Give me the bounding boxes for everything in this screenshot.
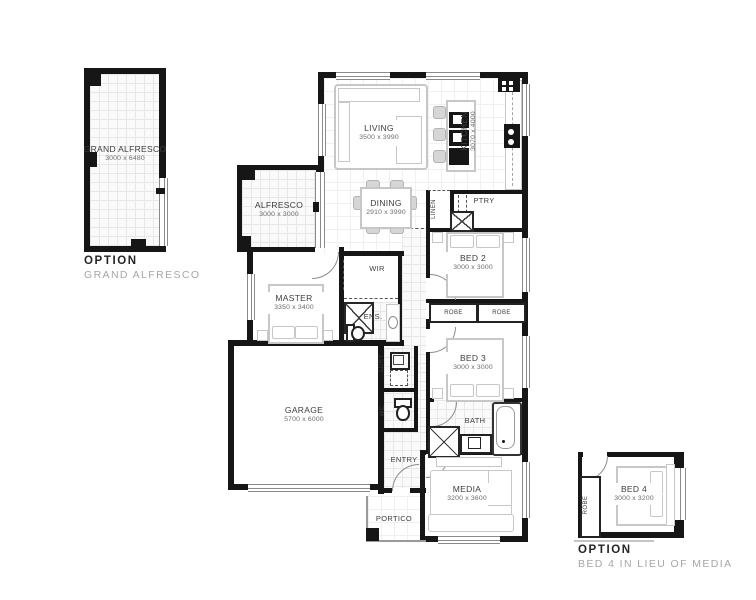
option-title: OPTION — [84, 255, 138, 267]
stool — [433, 106, 446, 119]
oven-dial — [508, 129, 514, 135]
room-dims: 2910 x 3990 — [366, 209, 406, 217]
room-dims: 5700 x 6000 — [284, 416, 324, 424]
robe-label: ROBE — [583, 485, 593, 525]
room-name: BED 4 — [621, 484, 647, 495]
wall — [426, 190, 430, 232]
window — [674, 468, 686, 520]
room-label-garage: GARAGE 5700 x 6000 — [264, 404, 344, 426]
bedside-table — [503, 388, 514, 399]
window — [318, 104, 326, 156]
broom-cupboard — [450, 211, 474, 232]
window — [336, 72, 390, 80]
burner — [502, 87, 506, 91]
wall — [384, 428, 418, 432]
burner — [502, 81, 506, 85]
window — [247, 274, 255, 320]
bedside-table — [432, 388, 443, 399]
room-name: BED 3 — [460, 353, 486, 364]
room-label-media: MEDIA 3200 x 3600 — [438, 483, 496, 505]
room-dims: 3500 x 3990 — [359, 134, 399, 142]
stool — [433, 150, 446, 163]
room-dims: 3000 x 6480 — [105, 155, 145, 163]
sofa-back — [338, 88, 420, 102]
window — [522, 336, 530, 388]
wall — [450, 190, 528, 194]
room-name: GARAGE — [285, 405, 323, 416]
window — [522, 462, 530, 518]
washing-machine — [390, 370, 408, 386]
robe: ROBE — [429, 303, 478, 323]
bedside-table — [257, 330, 268, 341]
wall — [607, 452, 678, 457]
bathtub-inner — [496, 406, 515, 449]
toilet — [351, 326, 365, 341]
room-label-wc: WC — [380, 396, 390, 426]
room-dims: 3200 x 3600 — [447, 495, 487, 503]
room-label-dining: DINING 2910 x 3990 — [366, 198, 406, 217]
wall — [344, 251, 404, 256]
wall — [426, 352, 430, 402]
room-name: KITCHEN — [459, 111, 470, 150]
room-label-bed3: BED 3 3000 x 3000 — [446, 352, 500, 374]
room-label-portico: PORTICO — [370, 514, 418, 523]
room-label-bed2: BED 2 3000 x 3000 — [446, 252, 500, 274]
bedside-table — [432, 232, 443, 243]
room-label-living: LIVING 3500 x 3990 — [350, 120, 408, 146]
wall — [228, 346, 234, 490]
pier-post — [242, 168, 255, 180]
tv-unit — [436, 457, 502, 467]
pillow — [476, 384, 500, 397]
dining-table: DINING 2910 x 3990 — [360, 187, 412, 229]
robe-label: ROBE — [444, 310, 463, 316]
pier-post — [239, 236, 251, 248]
room-dims: 3070 x 4000 — [470, 111, 478, 151]
room-label-entry: ENTRY — [384, 455, 424, 464]
door-jamb — [156, 188, 165, 194]
pillow — [450, 235, 474, 248]
wir-opening — [343, 260, 344, 290]
option-title: OPTION — [578, 544, 632, 556]
option-subtitle: BED 4 IN LIEU OF MEDIA — [578, 558, 733, 570]
room-name: ALFRESCO — [255, 200, 303, 211]
burner — [509, 87, 513, 91]
pillow — [476, 235, 500, 248]
window — [426, 72, 480, 80]
robe: ROBE — [477, 303, 526, 323]
room-label-bed4: BED 4 3000 x 3200 — [606, 483, 662, 505]
door-jamb — [131, 239, 146, 246]
pillow — [450, 384, 474, 397]
room-dims: 3000 x 3000 — [259, 211, 299, 219]
burner — [509, 81, 513, 85]
room-label-ldry: LDRY — [379, 343, 389, 383]
sofa-back — [428, 514, 514, 532]
basin — [468, 437, 481, 449]
toilet — [396, 405, 410, 421]
drain — [502, 440, 505, 443]
wall — [384, 388, 418, 392]
room-label-ptry: PTRY — [462, 196, 506, 205]
room-label-wir: WIR — [360, 264, 394, 273]
room-label-grand-alfresco: GRAND ALFRESCO 3000 x 6480 — [88, 142, 162, 166]
room-name: GRAND ALFRESCO — [84, 144, 167, 155]
room-name: MEDIA — [453, 484, 481, 495]
wall — [378, 488, 392, 493]
bedside-table — [503, 232, 514, 243]
robe-slider — [344, 298, 398, 299]
pier-post — [88, 74, 101, 86]
room-dims: 3000 x 3000 — [453, 264, 493, 272]
room-label-master: MASTER 3350 x 3400 — [263, 292, 325, 314]
stool — [433, 128, 446, 141]
room-label-linen: LINEN — [431, 191, 441, 227]
wall — [426, 228, 430, 278]
floorplan-canvas: GRAND ALFRESCO 3000 x 6480 OPTION GRAND … — [0, 0, 756, 600]
shadow-line — [574, 540, 654, 542]
room-label-bath: BATH — [458, 416, 492, 425]
shower — [428, 426, 460, 458]
trough-bowl — [393, 355, 404, 365]
room-name: DINING — [366, 198, 406, 209]
room-dims: 3000 x 3200 — [614, 495, 654, 503]
bed-head — [666, 464, 675, 526]
room-label-alfresco: ALFRESCO 3000 x 3000 — [242, 198, 316, 222]
pillow — [295, 326, 318, 339]
garage-door — [248, 484, 370, 492]
option-subtitle: GRAND ALFRESCO — [84, 269, 200, 281]
room-dims: 3000 x 3000 — [453, 364, 493, 372]
window — [522, 84, 530, 136]
door-arc-master — [312, 252, 339, 279]
pillow — [272, 326, 295, 339]
oven-dial — [508, 139, 514, 145]
portico-post — [366, 528, 379, 541]
room-label-ens: ENS. — [360, 312, 386, 321]
robe-label: ROBE — [492, 310, 511, 316]
room-label-kitchen: KITCHEN 3070 x 4000 — [459, 91, 479, 171]
room-name: BED 2 — [460, 253, 486, 264]
wall — [420, 455, 425, 540]
basin — [388, 316, 398, 329]
room-dims: 3350 x 3400 — [274, 304, 314, 312]
window — [438, 536, 500, 544]
room-name: LIVING — [364, 123, 394, 134]
room-name: MASTER — [275, 293, 312, 304]
wall — [84, 246, 166, 252]
window — [522, 238, 530, 292]
sofa-arm — [338, 102, 350, 162]
